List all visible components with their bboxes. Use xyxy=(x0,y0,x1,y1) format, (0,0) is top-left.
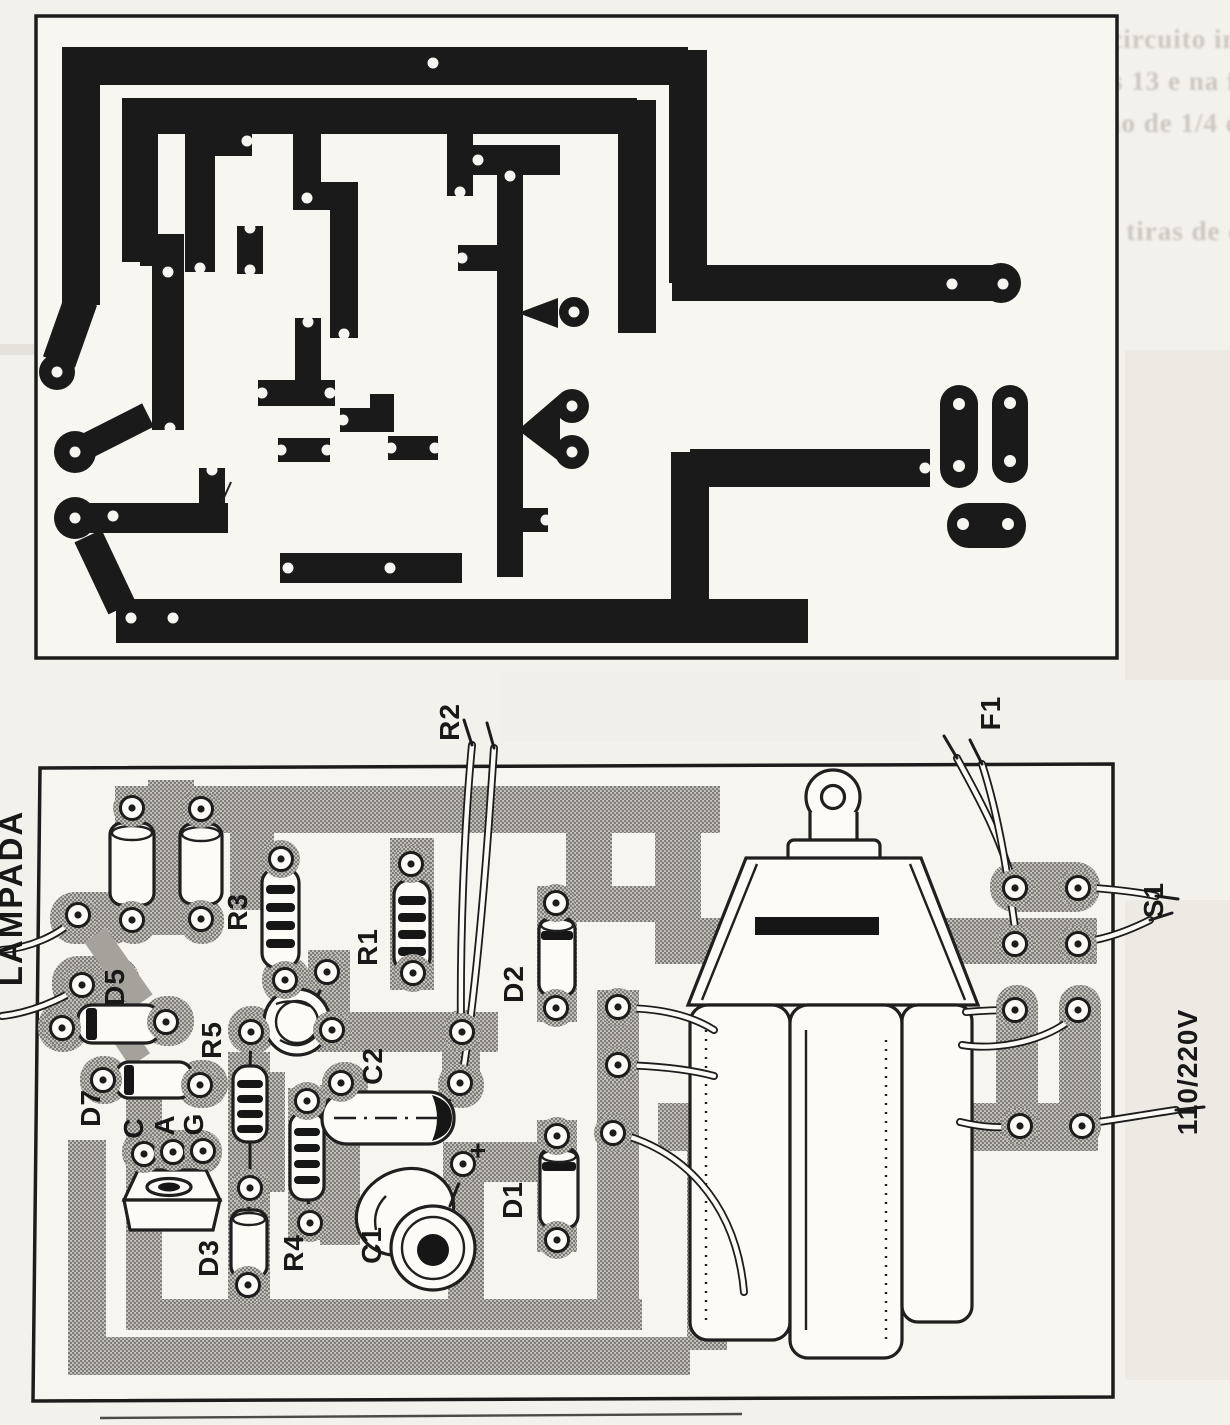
label-r3: R3 xyxy=(222,893,253,931)
label-lampada: LAMPADA xyxy=(0,810,29,987)
page-edge-line xyxy=(100,1414,742,1418)
label-d3: D3 xyxy=(193,1239,224,1277)
label-plus: + xyxy=(462,1141,493,1158)
label-pin-c: C xyxy=(118,1117,149,1138)
label-r2: R2 xyxy=(434,703,465,741)
label-f1: F1 xyxy=(975,696,1006,731)
label-r4: R4 xyxy=(278,1234,309,1272)
label-voltage: 110/220V xyxy=(1172,1009,1203,1135)
label-pin-g: G xyxy=(178,1113,209,1136)
component-assembly-panel: LAMPADA R2 F1 S1 110/220V D5 D7 C A G D3… xyxy=(0,696,1204,1418)
label-pin-a: A xyxy=(149,1114,180,1135)
label-d1: D1 xyxy=(497,1181,528,1219)
resistor-r3 xyxy=(262,861,299,978)
scanned-magazine-figure: As placas de circuito impresso das as fi… xyxy=(0,0,1230,1425)
pcb-copper-pattern-panel xyxy=(36,16,1117,658)
winding-window xyxy=(755,917,879,935)
label-c2: C2 xyxy=(357,1047,388,1085)
core-lamination xyxy=(902,1005,972,1322)
label-c1: C1 xyxy=(356,1226,387,1264)
label-d2: D2 xyxy=(498,965,529,1003)
label-d5: D5 xyxy=(99,968,130,1006)
label-s1: S1 xyxy=(1138,882,1169,918)
label-d7: D7 xyxy=(75,1089,106,1127)
pcb-figure-svg: As placas de circuito impresso das as fi… xyxy=(0,0,1230,1425)
label-r1: R1 xyxy=(352,928,383,966)
label-r5: R5 xyxy=(196,1021,227,1059)
